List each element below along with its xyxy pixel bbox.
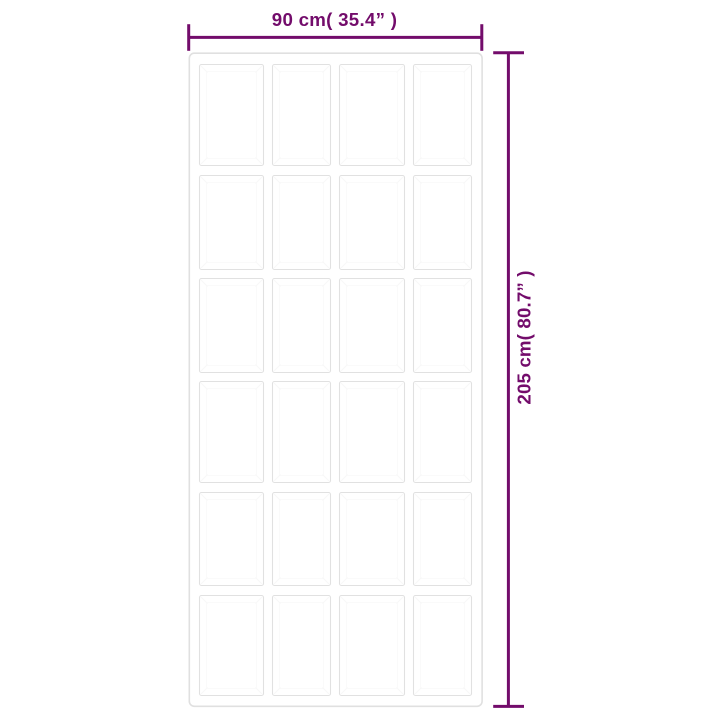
svg-text:90 cm( 35.4” ): 90 cm( 35.4” ) xyxy=(272,9,397,30)
svg-text:205 cm( 80.7” ): 205 cm( 80.7” ) xyxy=(514,270,535,404)
